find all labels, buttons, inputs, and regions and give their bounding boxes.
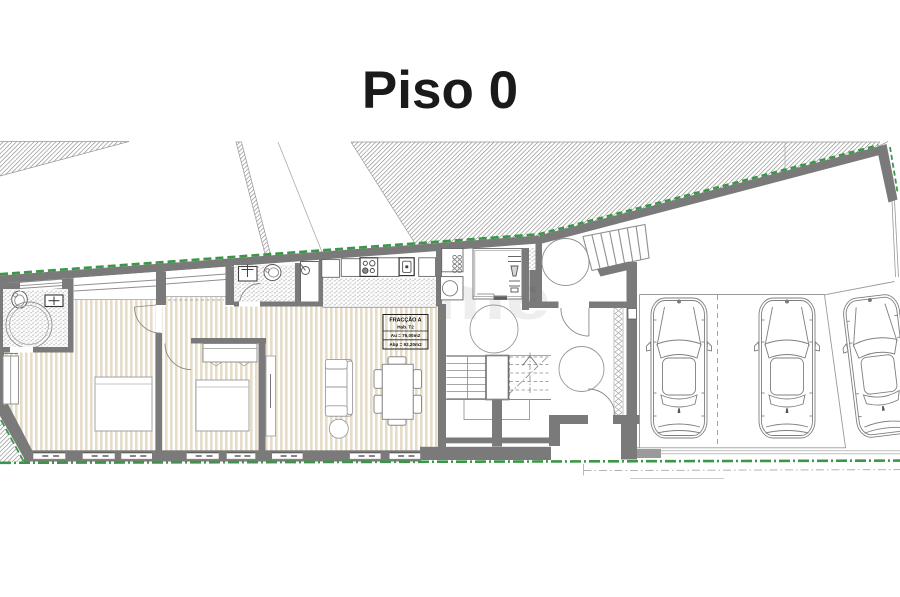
svg-text:Hab. T2: Hab. T2 — [397, 325, 414, 330]
svg-text:Piso 0: Piso 0 — [362, 61, 518, 120]
svg-text:Abp = 92,20m2: Abp = 92,20m2 — [389, 342, 422, 347]
svg-text:Au = 76,00m2: Au = 76,00m2 — [391, 333, 421, 338]
svg-text:FRACÇÃO A: FRACÇÃO A — [389, 317, 421, 324]
